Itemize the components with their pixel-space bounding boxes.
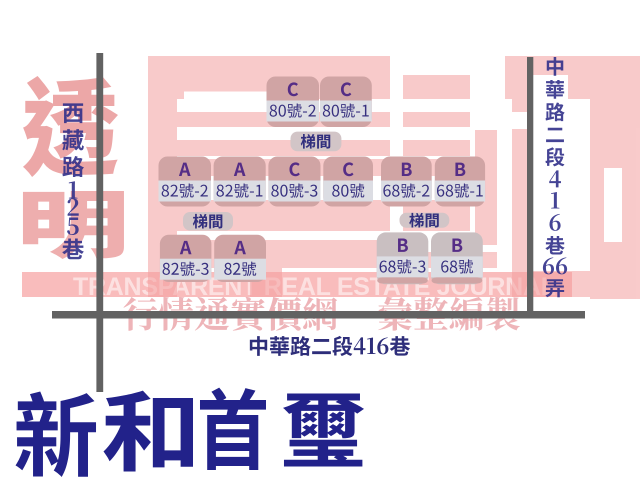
svg-text:TRANSPARENT REAL ESTATE JOURNA: TRANSPARENT REAL ESTATE JOURNAL	[73, 273, 556, 301]
